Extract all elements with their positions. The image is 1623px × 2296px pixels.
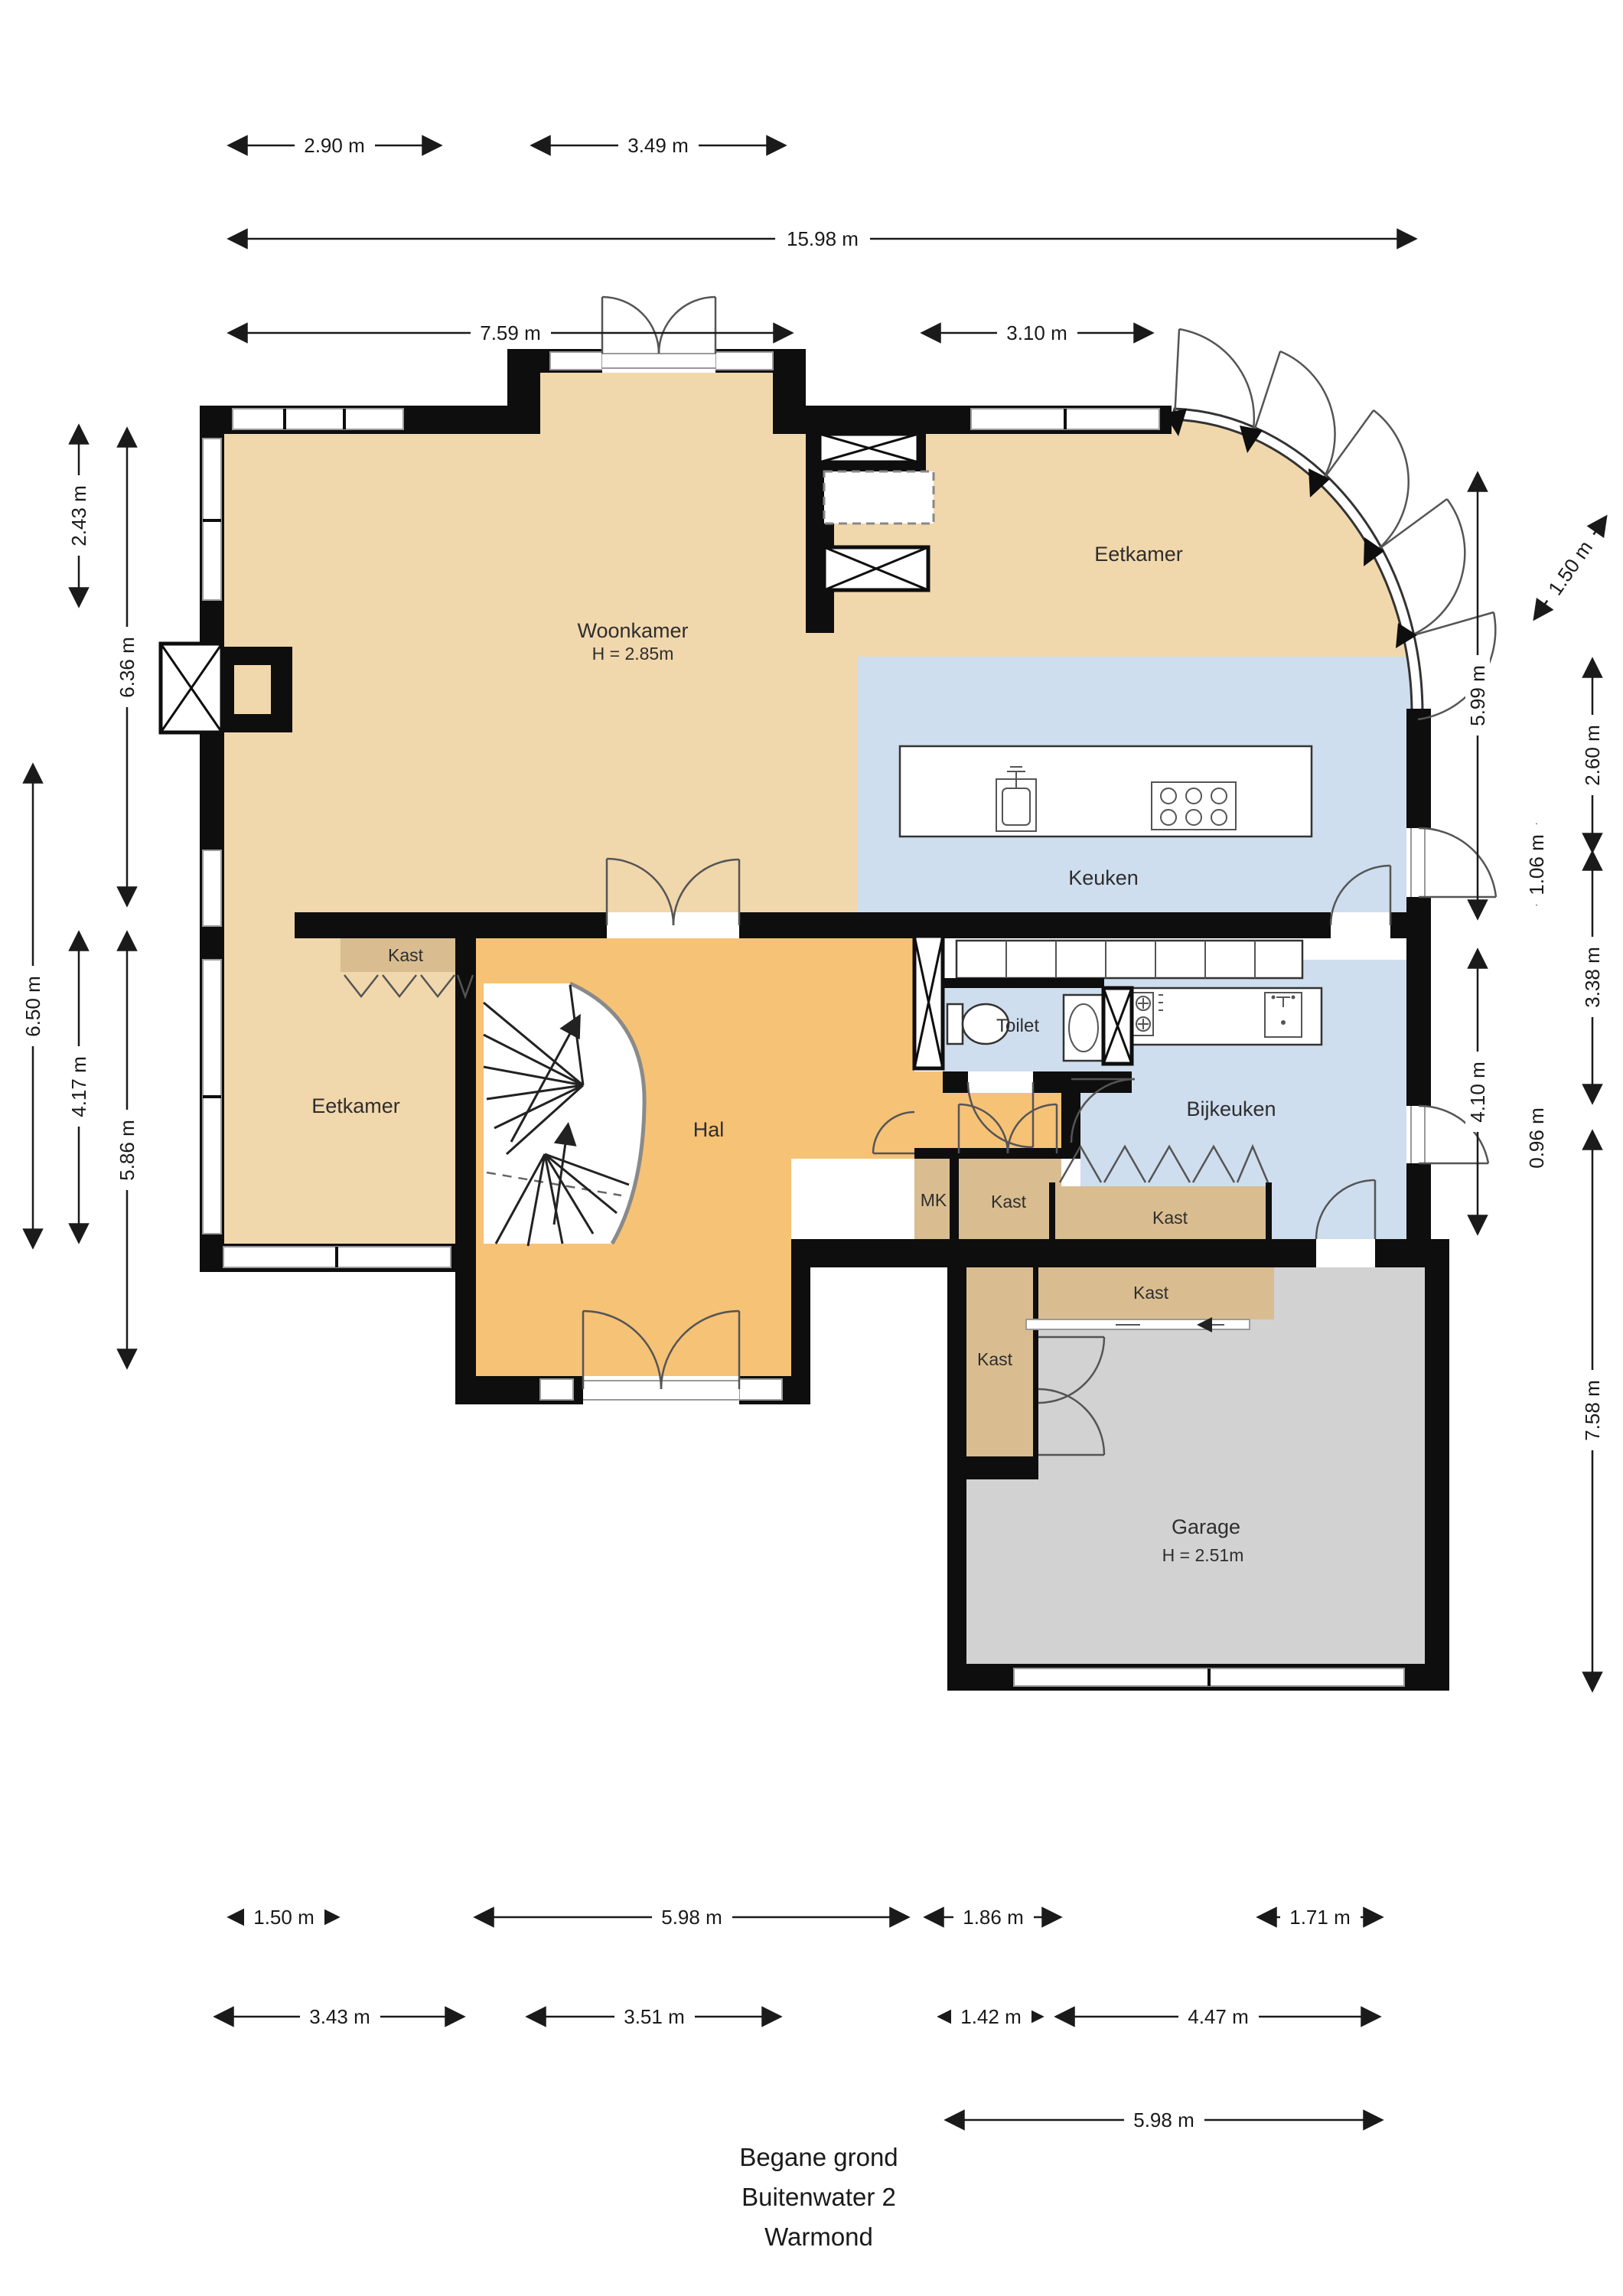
woonkamer-label: Woonkamer [577, 619, 688, 642]
eetkamer-left-label: Eetkamer [311, 1094, 400, 1117]
chimney-shaft [161, 644, 222, 732]
window-entrance-left [540, 1379, 573, 1400]
svg-text:5.99 m: 5.99 m [1466, 665, 1489, 726]
staircase [484, 983, 644, 1246]
room-hal-corridor [791, 938, 914, 1159]
svg-text:7.59 m: 7.59 m [480, 321, 541, 344]
svg-text:2.43 m: 2.43 m [67, 485, 90, 546]
kitchen-cabinet-row [957, 941, 1302, 978]
svg-text:0.96 m: 0.96 m [1525, 1107, 1548, 1169]
kitchen-island [900, 746, 1312, 837]
mk-label: MK [921, 1190, 947, 1210]
svg-text:15.98 m: 15.98 m [787, 227, 859, 250]
svg-text:3.43 m: 3.43 m [309, 2005, 370, 2028]
dim-right-106: 1.06 m [1524, 824, 1549, 905]
svg-text:2.90 m: 2.90 m [304, 134, 365, 157]
shaft-woonkamer [824, 547, 928, 590]
kast4-label: Kast [1133, 1283, 1169, 1303]
svg-text:4.10 m: 4.10 m [1466, 1062, 1489, 1123]
keuken-label: Keuken [1068, 866, 1139, 889]
svg-text:1.86 m: 1.86 m [963, 1906, 1024, 1929]
svg-text:5.98 m: 5.98 m [1133, 2108, 1194, 2131]
title-floor: Begane grond [739, 2143, 898, 2171]
hatched-shaft-window [820, 434, 918, 462]
svg-text:1.50 m: 1.50 m [253, 1906, 314, 1929]
svg-text:5.98 m: 5.98 m [661, 1906, 722, 1929]
floorplan-page: Woonkamer H = 2.85m Eetkamer Keuken Eetk… [0, 0, 1623, 2296]
svg-text:2.60 m: 2.60 m [1581, 725, 1604, 786]
bijkeuken-counter [1108, 988, 1322, 1045]
kast1-label: Kast [388, 945, 424, 965]
dim-right-096: 0.96 m [1524, 1097, 1549, 1178]
svg-text:6.50 m: 6.50 m [21, 976, 44, 1037]
window-entrance-right [739, 1379, 782, 1400]
toilet-tank [947, 1004, 963, 1044]
fireplace-recess [234, 665, 271, 714]
shaft-toilet-right [1103, 988, 1132, 1064]
shaft-toilet-left [914, 936, 943, 1068]
svg-text:1.06 m: 1.06 m [1525, 834, 1548, 895]
dim-bottom-150: 1.50 m [229, 1905, 338, 1929]
window-left-upper [203, 439, 221, 600]
svg-text:3.38 m: 3.38 m [1581, 947, 1604, 1008]
toilet-label: Toilet [996, 1016, 1039, 1036]
window-protrusion-right [715, 352, 773, 370]
window-left-lower [203, 960, 221, 1234]
dashed-niche [824, 471, 934, 523]
svg-text:3.51 m: 3.51 m [624, 2005, 685, 2028]
woonkamer-height-label: H = 2.85m [592, 644, 674, 664]
svg-text:6.36 m: 6.36 m [116, 637, 139, 698]
svg-text:4.17 m: 4.17 m [67, 1056, 90, 1117]
kast2-label: Kast [991, 1192, 1027, 1212]
svg-text:5.86 m: 5.86 m [116, 1120, 139, 1181]
window-top-right [971, 409, 1159, 429]
svg-text:4.47 m: 4.47 m [1188, 2005, 1249, 2028]
title-address: Buitenwater 2 [741, 2183, 896, 2211]
kast3-label: Kast [1152, 1208, 1188, 1228]
floorplan-canvas: Woonkamer H = 2.85m Eetkamer Keuken Eetk… [0, 0, 1623, 2296]
garage-label: Garage [1172, 1515, 1240, 1538]
svg-text:1.71 m: 1.71 m [1289, 1906, 1351, 1929]
dim-bottom-142: 1.42 m [939, 2004, 1042, 2029]
svg-text:1.42 m: 1.42 m [960, 2005, 1022, 2028]
svg-text:7.58 m: 7.58 m [1581, 1380, 1604, 1441]
window-left-middle [203, 850, 221, 926]
hal-label: Hal [693, 1118, 725, 1141]
title-city: Warmond [764, 2223, 873, 2251]
kast5-label: Kast [977, 1349, 1013, 1369]
bijkeuken-label: Bijkeuken [1186, 1097, 1276, 1120]
window-top-left [233, 409, 403, 429]
garage-door-strip [1014, 1668, 1404, 1686]
eetkamer-top-label: Eetkamer [1094, 543, 1183, 566]
svg-text:3.49 m: 3.49 m [627, 134, 689, 157]
svg-text:3.10 m: 3.10 m [1006, 321, 1067, 344]
garage-height-label: H = 2.51m [1162, 1545, 1244, 1565]
window-eetkamer-bottom [223, 1247, 451, 1267]
window-protrusion-left [550, 352, 602, 370]
